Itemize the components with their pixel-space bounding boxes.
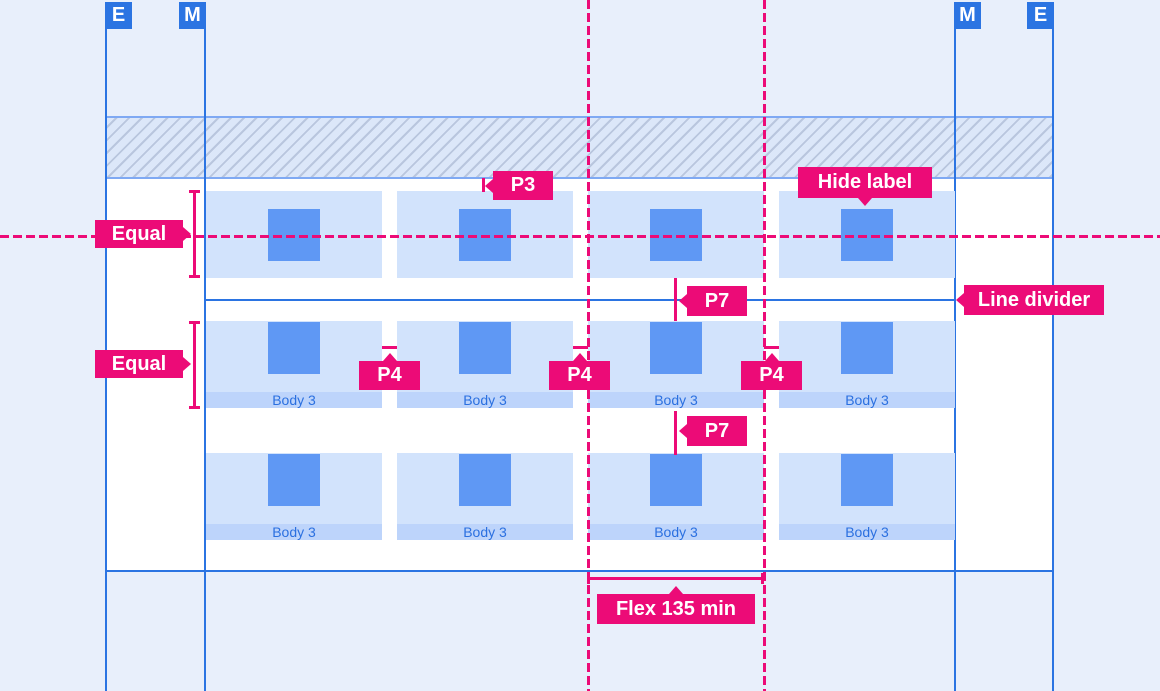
card-label: Body 3	[206, 392, 382, 408]
icon-placeholder	[650, 322, 702, 374]
p4-measure-tick-1	[382, 346, 397, 349]
equal-label-1: Equal	[95, 220, 183, 248]
icon-placeholder	[650, 454, 702, 506]
card-item: Body 3	[588, 453, 764, 540]
icon-placeholder	[268, 322, 320, 374]
card-item: Body 3	[397, 453, 573, 540]
margin-marker-left: M	[179, 2, 206, 29]
card-label: Body 3	[588, 524, 764, 540]
p4-measure-tick-3	[764, 346, 779, 349]
layout-spec-diagram: E M M E Body 3 Body 3 Body 3 Body 3 Body…	[0, 0, 1160, 691]
p7-measure-tick-1	[674, 278, 677, 321]
icon-placeholder	[459, 322, 511, 374]
line-divider-label: Line divider	[964, 285, 1104, 315]
card-item: Body 3	[206, 321, 382, 408]
p4-label-3: P4	[741, 361, 802, 390]
flex-min-label: Flex 135 min	[597, 594, 755, 624]
card-label: Body 3	[588, 392, 764, 408]
icon-placeholder	[841, 454, 893, 506]
p4-label-1: P4	[359, 361, 420, 390]
p4-label-2: P4	[549, 361, 610, 390]
edge-line-right	[1052, 29, 1054, 691]
margin-marker-right: M	[954, 2, 981, 29]
card-item: Body 3	[779, 321, 955, 408]
flex-measure-bracket	[587, 573, 764, 584]
hide-label-callout: Hide label	[798, 167, 932, 198]
card-label: Body 3	[397, 524, 573, 540]
card-item: Body 3	[588, 321, 764, 408]
card-item: Body 3	[206, 453, 382, 540]
p7-label-2: P7	[687, 416, 747, 446]
edge-marker-right: E	[1027, 2, 1054, 29]
card-label: Body 3	[779, 392, 955, 408]
edge-marker-left: E	[105, 2, 132, 29]
card-item: Body 3	[779, 453, 955, 540]
card-label: Body 3	[779, 524, 955, 540]
p7-label-1: P7	[687, 286, 747, 316]
p7-measure-tick-2	[674, 411, 677, 455]
equal-label-2: Equal	[95, 350, 183, 378]
card-label: Body 3	[206, 524, 382, 540]
line-divider-rule	[204, 299, 954, 301]
card-item: Body 3	[397, 321, 573, 408]
icon-placeholder	[841, 322, 893, 374]
p4-measure-tick-2	[573, 346, 588, 349]
card-label: Body 3	[397, 392, 573, 408]
p3-label: P3	[493, 171, 553, 200]
icon-placeholder	[268, 454, 320, 506]
icon-placeholder	[459, 454, 511, 506]
